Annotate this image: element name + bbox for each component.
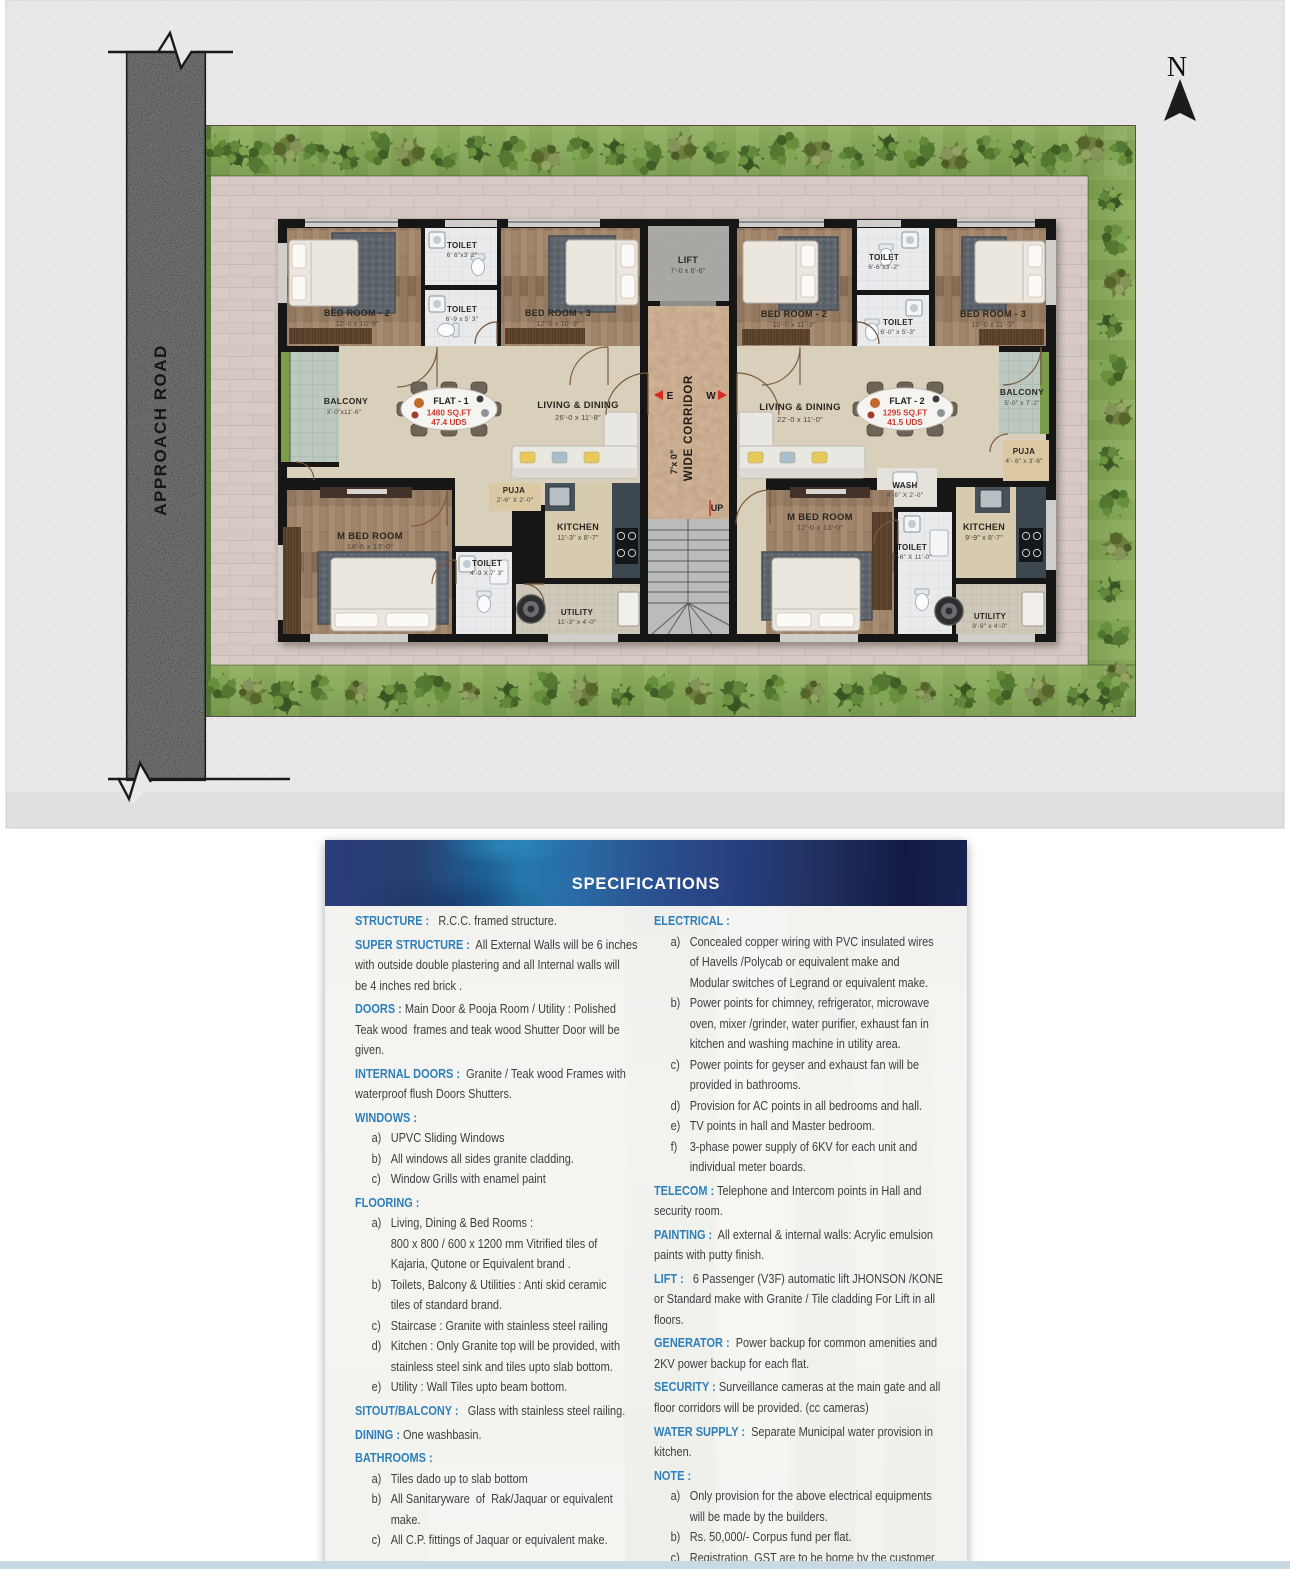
svg-text:12'-0 x 13'-0": 12'-0 x 13'-0" (797, 523, 843, 532)
svg-text:TOILET: TOILET (869, 253, 899, 262)
svg-text:TOILET: TOILET (447, 241, 477, 250)
svg-text:7'-0 x 6'-6": 7'-0 x 6'-6" (670, 268, 705, 275)
svg-text:47.4 UDS: 47.4 UDS (431, 418, 467, 427)
svg-text:14'-6 x 13'-0": 14'-6 x 13'-0" (347, 542, 393, 551)
svg-text:1295 SQ.FT: 1295 SQ.FT (883, 409, 928, 418)
svg-text:7’x 0”: 7’x 0” (669, 450, 679, 475)
svg-text:9'-9" x 8'-7": 9'-9" x 8'-7" (965, 535, 1003, 542)
svg-text:TOILET: TOILET (897, 543, 927, 552)
svg-text:WASH: WASH (892, 481, 917, 490)
svg-text:BED ROOM - 2: BED ROOM - 2 (761, 309, 827, 319)
svg-text:LIVING & DINING: LIVING & DINING (537, 400, 619, 411)
svg-text:41.5 UDS: 41.5 UDS (887, 418, 923, 427)
svg-text:6'-0" x 5'-3": 6'-0" x 5'-3" (880, 329, 916, 336)
svg-text:BED ROOM - 3: BED ROOM - 3 (525, 308, 591, 318)
svg-text:4'- 6" x 3'-6": 4'- 6" x 3'-6" (1005, 458, 1043, 465)
svg-text:BALCONY: BALCONY (1000, 387, 1044, 397)
svg-text:FLAT - 1: FLAT - 1 (433, 396, 468, 406)
svg-text:4'-6" X 2'-0": 4'-6" X 2'-0" (887, 492, 924, 499)
svg-text:LIFT: LIFT (678, 255, 698, 265)
svg-text:4'-6" X 11'-0": 4'-6" X 11'-0" (892, 554, 932, 561)
svg-text:1480 SQ.FT: 1480 SQ.FT (427, 409, 472, 418)
svg-text:TOILET: TOILET (883, 318, 913, 327)
svg-text:UTILITY: UTILITY (561, 608, 594, 617)
svg-text:KITCHEN: KITCHEN (557, 522, 599, 532)
svg-text:3'-0"x11'-6": 3'-0"x11'-6" (327, 409, 362, 416)
svg-text:6'-9 x 5' 3": 6'-9 x 5' 3" (446, 316, 479, 323)
svg-text:UP: UP (711, 503, 724, 513)
svg-text:APPROACH ROAD: APPROACH ROAD (151, 344, 170, 516)
svg-text:6' 6"x3' 2": 6' 6"x3' 2" (447, 252, 478, 259)
svg-text:WIDE CORRIDOR: WIDE CORRIDOR (683, 375, 695, 481)
svg-text:5'-0" x 7'-2": 5'-0" x 7'-2" (1004, 400, 1040, 407)
svg-text:12'-0 x 10'-9": 12'-0 x 10'-9" (335, 321, 379, 328)
svg-text:2'-6" X 2'-0": 2'-6" X 2'-0" (497, 497, 534, 504)
svg-text:TOILET: TOILET (447, 305, 477, 314)
svg-text:M BED ROOM: M BED ROOM (787, 512, 853, 523)
svg-text:12'-0 x 10'-9": 12'-0 x 10'-9" (536, 321, 580, 328)
svg-text:TOILET: TOILET (472, 559, 502, 568)
svg-text:M BED ROOM: M BED ROOM (337, 531, 403, 542)
svg-text:PUJA: PUJA (1013, 447, 1036, 456)
svg-text:11'-3" x 4'-0": 11'-3" x 4'-0" (558, 619, 597, 626)
svg-text:W: W (706, 391, 716, 402)
svg-text:4'-9 X 7' 3": 4'-9 X 7' 3" (470, 570, 504, 577)
svg-text:10'-0 x 11'-3": 10'-0 x 11'-3" (972, 322, 1015, 329)
svg-text:LIVING & DINING: LIVING & DINING (759, 402, 841, 413)
svg-text:BALCONY: BALCONY (324, 396, 368, 406)
svg-text:E: E (667, 391, 674, 402)
svg-text:KITCHEN: KITCHEN (963, 522, 1005, 532)
svg-text:22'-0 x 11'-0": 22'-0 x 11'-0" (777, 415, 823, 424)
svg-text:FLAT - 2: FLAT - 2 (889, 396, 924, 406)
svg-text:9'-9" x 4'-0": 9'-9" x 4'-0" (972, 623, 1008, 630)
svg-text:10'-0 x 11'-3": 10'-0 x 11'-3" (773, 322, 816, 329)
svg-text:BED ROOM - 2: BED ROOM - 2 (324, 308, 390, 318)
svg-text:26'-0 x 11'-8": 26'-0 x 11'-8" (555, 413, 601, 422)
svg-text:BED ROOM - 3: BED ROOM - 3 (960, 309, 1026, 319)
svg-text:11'-3" x 8'-7": 11'-3" x 8'-7" (557, 535, 599, 542)
svg-text:UTILITY: UTILITY (974, 612, 1007, 621)
svg-text:PUJA: PUJA (503, 486, 526, 495)
svg-text:6'-6"x3'-2": 6'-6"x3'-2" (868, 264, 900, 271)
svg-text:N: N (1167, 52, 1187, 83)
